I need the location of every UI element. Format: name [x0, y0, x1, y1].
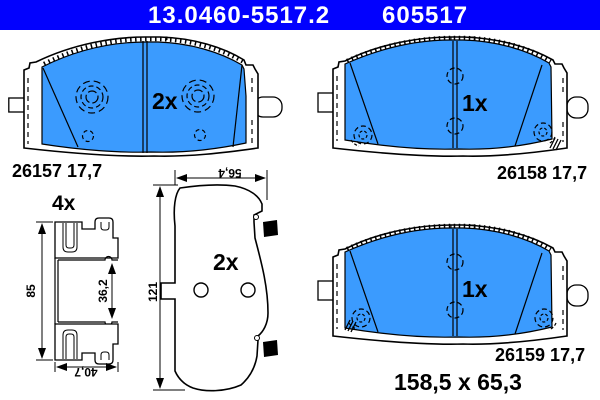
- pad-drawing-bottom-right: [315, 224, 600, 354]
- pad-article-label-26159: 26159 17,7: [495, 345, 585, 366]
- pad-side-view-drawing: 56,4 121: [145, 166, 293, 400]
- dimension-121: 121: [146, 282, 160, 302]
- dimension-85: 85: [24, 284, 38, 298]
- brake-pad-technical-drawing: 13.0460-5517.2 605517 2x 26157 17,7: [0, 0, 600, 400]
- dimension-56-4: 56,4: [218, 166, 242, 180]
- article-sku: 605517: [382, 2, 468, 30]
- pad-drawing-top-right: [315, 36, 600, 166]
- part-number: 13.0460-5517.2: [148, 2, 330, 30]
- quantity-label-top-left: 2x: [152, 88, 178, 115]
- quantity-label-top-right: 1x: [462, 90, 488, 117]
- quantity-label-bottom-right: 1x: [462, 276, 488, 303]
- dimension-40-7: 40,7: [74, 365, 98, 379]
- pad-article-label-26158: 26158 17,7: [497, 163, 587, 184]
- quantity-label-clip: 4x: [52, 192, 75, 216]
- dimension-36-2: 36,2: [96, 279, 110, 303]
- shim-tab-top: [263, 220, 278, 237]
- quantity-label-side-view: 2x: [213, 249, 239, 276]
- accessory-clip-drawing: 85 36,2 40,7: [20, 190, 150, 386]
- shim-tab-bottom: [263, 340, 278, 357]
- pad-article-label-26157: 26157 17,7: [12, 161, 102, 182]
- pad-dimensions-label: 158,5 x 65,3: [394, 369, 522, 396]
